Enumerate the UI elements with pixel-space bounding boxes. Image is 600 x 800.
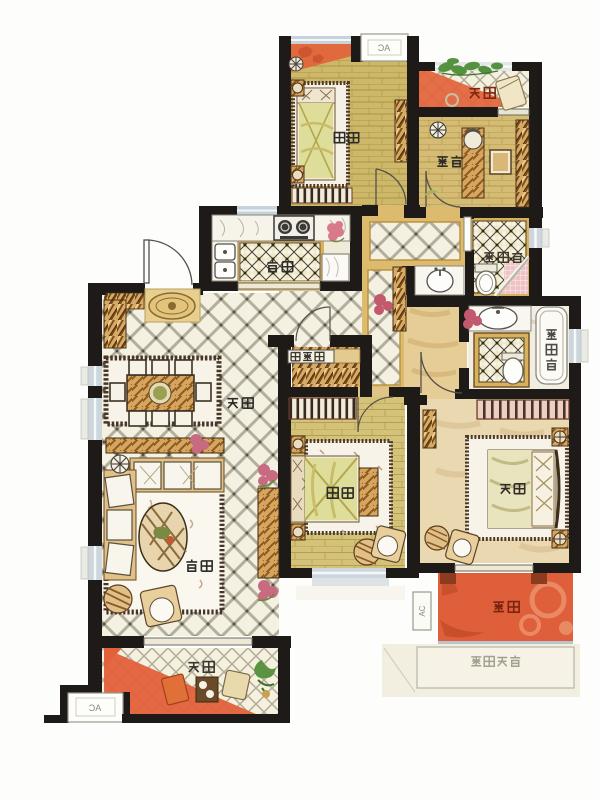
svg-text:AC: AC [418, 605, 427, 616]
svg-text:AC: AC [88, 703, 101, 713]
svg-text:AC: AC [377, 43, 390, 53]
